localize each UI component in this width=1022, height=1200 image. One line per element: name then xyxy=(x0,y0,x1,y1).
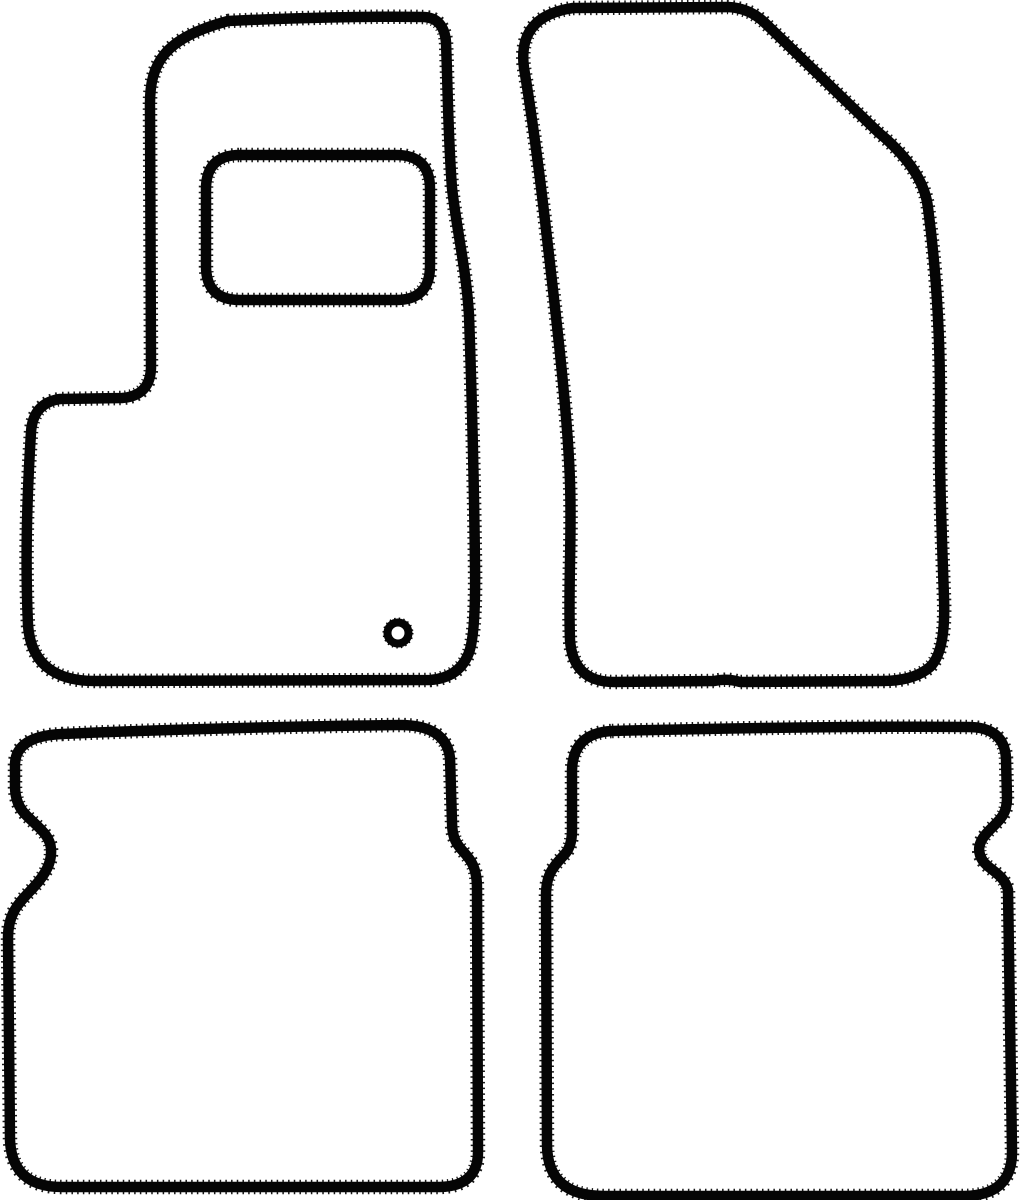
mat-template-canvas xyxy=(0,0,1022,1200)
mat-set-diagram xyxy=(0,0,1022,1200)
